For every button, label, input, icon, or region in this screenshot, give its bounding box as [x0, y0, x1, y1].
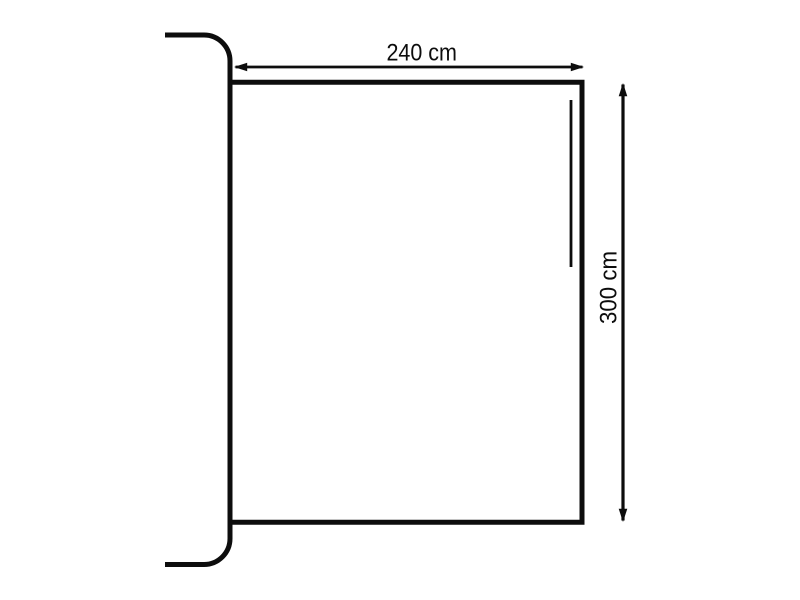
- svg-text:240 cm: 240 cm: [386, 40, 457, 67]
- svg-text:300 cm: 300 cm: [596, 251, 623, 324]
